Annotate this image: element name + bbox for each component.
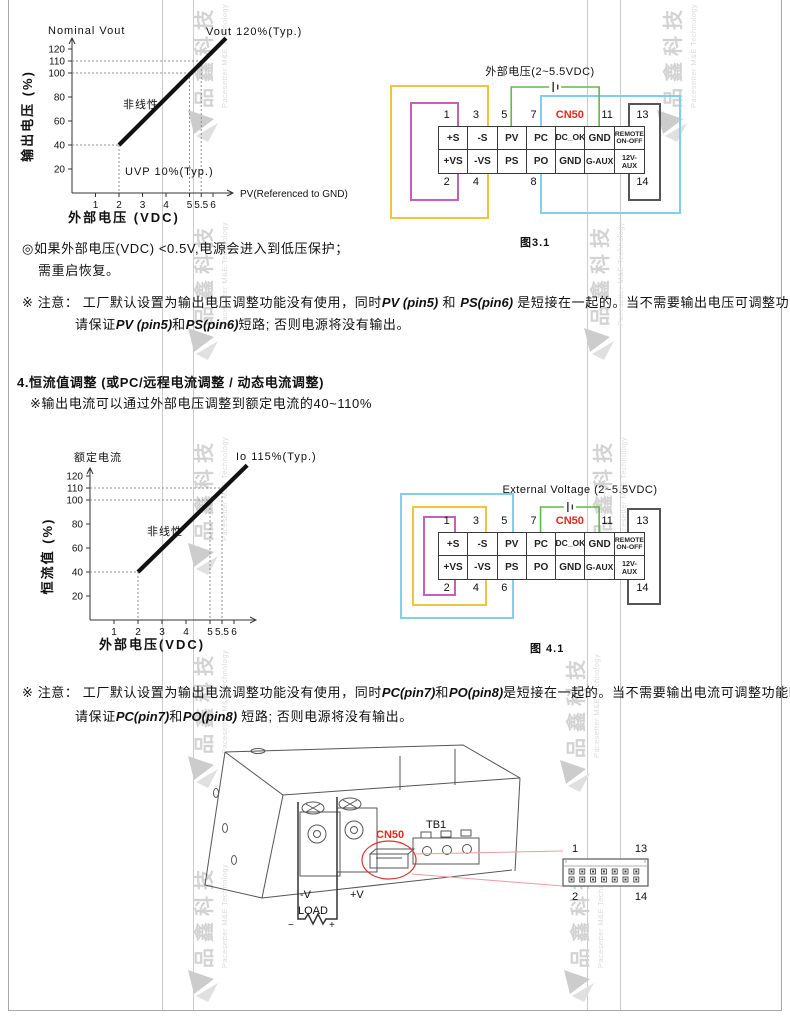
pin-cell: PC bbox=[527, 127, 556, 150]
pin-cell: PS bbox=[498, 556, 527, 579]
pin-cell: GND bbox=[556, 150, 585, 173]
pin-cell: REMOTE ON-OFF bbox=[615, 127, 644, 150]
svg-text:5: 5 bbox=[207, 627, 213, 638]
svg-text:Nominal Vout: Nominal Vout bbox=[48, 25, 125, 37]
chassis-inner-left-edge bbox=[262, 795, 283, 898]
connector-figure-4-1: +S-SPVPCDC_OKGNDREMOTE ON-OFF+VS-VSPSPOG… bbox=[390, 460, 700, 665]
plus-label: + bbox=[329, 920, 335, 931]
pin-cell: PO bbox=[527, 556, 556, 579]
pin-row: +VS-VSPSPOGNDG-AUX12V-AUX bbox=[439, 150, 644, 173]
page-border-right bbox=[781, 0, 782, 1010]
tb1-tab bbox=[441, 831, 451, 837]
pin-cell: PV bbox=[498, 533, 527, 556]
tb1-label: TB1 bbox=[426, 819, 446, 831]
tb1-screw bbox=[463, 845, 472, 854]
tb1-tab bbox=[421, 832, 431, 838]
page-border-left bbox=[8, 0, 9, 1010]
svg-text:5.5: 5.5 bbox=[215, 627, 229, 638]
page-border-bottom bbox=[8, 1010, 782, 1011]
leader-line bbox=[416, 851, 563, 854]
uvp-protection-note: ◎如果外部电压(VDC) <0.5V,电源会进入到低压保护； 需重启恢复。 bbox=[22, 238, 349, 282]
note-line: 请保证PC(pin7)和PO(pin8) 短路; 否则电源将没有输出。 bbox=[75, 706, 790, 730]
psu-connection-drawing: CN50 TB1 -V +V LOAD − + 1 13 2 14 bbox=[180, 738, 670, 950]
current-adjust-note: ※ 注意： 工厂默认设置为输出电流调整功能没有使用，同时PC(pin7)和PO(… bbox=[22, 682, 790, 730]
svg-text:20: 20 bbox=[54, 165, 66, 176]
terminal-hole bbox=[345, 821, 363, 839]
figure-caption: 图3.1 bbox=[520, 234, 550, 250]
pin-cell: PV bbox=[498, 127, 527, 150]
terminal-hole bbox=[314, 831, 321, 838]
pin-cell: GND bbox=[556, 556, 585, 579]
pin-number: 6 bbox=[492, 582, 516, 594]
chart2-svg: 20406080100110120123455.56额定电流外部电压(VDC)恒… bbox=[40, 436, 370, 666]
chassis-bottom-edge bbox=[205, 752, 512, 898]
svg-text:80: 80 bbox=[54, 93, 66, 104]
svg-text:外部电压 (VDC): 外部电压 (VDC) bbox=[67, 210, 180, 225]
pin-cell: +VS bbox=[439, 150, 468, 173]
pin-number: 7 bbox=[522, 109, 546, 121]
current-adjust-chart: 20406080100110120123455.56额定电流外部电压(VDC)恒… bbox=[40, 436, 370, 671]
terminal-hole bbox=[308, 825, 326, 843]
pin-row: +S-SPVPCDC_OKGNDREMOTE ON-OFF bbox=[439, 533, 644, 556]
header-pin2-label: 2 bbox=[572, 891, 578, 903]
screw-cross bbox=[343, 800, 357, 808]
note-line: ※ 注意： 工厂默认设置为输出电流调整功能没有使用，同时PC(pin7)和PO(… bbox=[22, 682, 790, 706]
pin-cell: -S bbox=[468, 533, 497, 556]
output-terminal-block bbox=[337, 808, 377, 872]
connector-figure-3-1: +S-SPVPCDC_OKGNDREMOTE ON-OFF+VS-VSPSPOG… bbox=[380, 60, 690, 260]
svg-text:20: 20 bbox=[72, 592, 84, 603]
output-terminal-block bbox=[300, 812, 340, 876]
svg-text:6: 6 bbox=[231, 627, 237, 638]
section4-subline: ※输出电流可以通过外部电压调整到额定电流的40~110% bbox=[30, 393, 372, 412]
voltage-adjust-note: ※ 注意： 工厂默认设置为输出电压调整功能没有使用，同时PV (pin5) 和 … bbox=[22, 292, 790, 336]
pin-number: 13 bbox=[630, 109, 654, 121]
pin-cell: REMOTE ON-OFF bbox=[615, 533, 644, 556]
svg-text:60: 60 bbox=[72, 544, 84, 555]
pin-number: 14 bbox=[630, 176, 654, 188]
svg-text:40: 40 bbox=[72, 568, 84, 579]
vent-hole bbox=[214, 789, 219, 798]
watermark-logo-icon bbox=[562, 970, 596, 1002]
vout-adjust-chart: 20406080100110120123455.56Nominal Vout外部… bbox=[20, 8, 350, 243]
vent-hole bbox=[232, 856, 237, 865]
svg-text:恒流值 (%): 恒流值 (%) bbox=[40, 518, 55, 595]
svg-text:非线性: 非线性 bbox=[123, 97, 159, 111]
cn50-label: CN50 bbox=[548, 109, 592, 121]
svg-text:额定电流: 额定电流 bbox=[74, 450, 122, 464]
cn50-pin-header bbox=[563, 859, 648, 886]
pin-cell: DC_OK bbox=[556, 533, 585, 556]
pin-number: 13 bbox=[630, 515, 654, 527]
pin-cell: 12V-AUX bbox=[615, 556, 644, 579]
datasheet-page: 20406080100110120123455.56Nominal Vout外部… bbox=[0, 0, 790, 1018]
svg-text:非线性: 非线性 bbox=[147, 524, 183, 538]
section4-heading: 4.恒流值调整 (或PC/远程电流调整 / 动态电流调整) bbox=[17, 372, 324, 391]
pin-cell: GND bbox=[585, 127, 614, 150]
svg-text:5.5: 5.5 bbox=[194, 200, 208, 211]
pin-number: 4 bbox=[464, 176, 488, 188]
pin-cell: -VS bbox=[468, 150, 497, 173]
svg-text:Vout 120%(Typ.): Vout 120%(Typ.) bbox=[206, 26, 302, 38]
svg-text:120: 120 bbox=[66, 472, 83, 483]
pin-cell: PS bbox=[498, 150, 527, 173]
chart1-svg: 20406080100110120123455.56Nominal Vout外部… bbox=[20, 8, 350, 238]
pin-number: 2 bbox=[435, 176, 459, 188]
pin-number: 11 bbox=[595, 515, 619, 527]
svg-text:110: 110 bbox=[49, 57, 65, 68]
external-voltage-label: External Voltage (2~5.5VDC) bbox=[475, 484, 685, 496]
pin-cell: PC bbox=[527, 533, 556, 556]
svg-text:PV(Referenced to GND): PV(Referenced to GND) bbox=[240, 189, 348, 200]
svg-text:UVP 10%(Typ.): UVP 10%(Typ.) bbox=[125, 166, 214, 178]
svg-text:6: 6 bbox=[210, 200, 216, 211]
tb1-tab bbox=[461, 830, 471, 836]
pin-row: +VS-VSPSPOGNDG-AUX12V-AUX bbox=[439, 556, 644, 579]
pos-v-label: +V bbox=[350, 889, 364, 901]
chassis-back-edge bbox=[225, 745, 520, 778]
cn50-label: CN50 bbox=[548, 515, 592, 527]
svg-text:120: 120 bbox=[48, 45, 65, 56]
header-pin1-label: 1 bbox=[572, 843, 578, 855]
pin-row: +S-SPVPCDC_OKGNDREMOTE ON-OFF bbox=[439, 127, 644, 150]
header-pin13-label: 13 bbox=[635, 843, 647, 855]
pin-cell: PO bbox=[527, 150, 556, 173]
pin-cell: GND bbox=[585, 533, 614, 556]
pin-cell: -S bbox=[468, 127, 497, 150]
pin-number: 1 bbox=[435, 515, 459, 527]
pin-number: 4 bbox=[464, 582, 488, 594]
pin-cell: +S bbox=[439, 127, 468, 150]
svg-text:100: 100 bbox=[66, 496, 83, 507]
pin-cell: +S bbox=[439, 533, 468, 556]
svg-text:外部电压(VDC): 外部电压(VDC) bbox=[98, 637, 205, 652]
svg-text:Io 115%(Typ.): Io 115%(Typ.) bbox=[236, 451, 317, 463]
pin-number: 7 bbox=[522, 515, 546, 527]
pin-number: 8 bbox=[522, 176, 546, 188]
neg-v-label: -V bbox=[300, 889, 312, 901]
note-line: ※ 注意： 工厂默认设置为输出电压调整功能没有使用，同时PV (pin5) 和 … bbox=[22, 292, 790, 314]
pin-number: 5 bbox=[492, 109, 516, 121]
pin-number: 3 bbox=[464, 109, 488, 121]
svg-text:输出电压 (%): 输出电压 (%) bbox=[20, 70, 35, 162]
pin-number: 2 bbox=[435, 582, 459, 594]
pin-cell: -VS bbox=[468, 556, 497, 579]
chassis-right-edge bbox=[515, 778, 520, 871]
watermark-logo-icon bbox=[186, 970, 220, 1002]
pin-cell: DC_OK bbox=[556, 127, 585, 150]
svg-text:60: 60 bbox=[54, 117, 66, 128]
header-pin14-label: 14 bbox=[635, 891, 647, 903]
figure-caption: 图 4.1 bbox=[530, 640, 564, 656]
external-voltage-label: 外部电压(2~5.5VDC) bbox=[453, 63, 628, 79]
pin-number: 11 bbox=[595, 109, 619, 121]
pin-number: 3 bbox=[464, 515, 488, 527]
pin-number: 14 bbox=[630, 582, 654, 594]
pin-table: +S-SPVPCDC_OKGNDREMOTE ON-OFF+VS-VSPSPOG… bbox=[438, 532, 645, 580]
pin-table: +S-SPVPCDC_OKGNDREMOTE ON-OFF+VS-VSPSPOG… bbox=[438, 126, 645, 174]
minus-label: − bbox=[288, 920, 294, 931]
leader-line bbox=[412, 874, 563, 886]
cn50-label: CN50 bbox=[376, 829, 404, 841]
pin-cell: G-AUX bbox=[585, 150, 614, 173]
svg-text:110: 110 bbox=[67, 484, 83, 495]
svg-text:5: 5 bbox=[187, 200, 193, 211]
note-line: 需重启恢复。 bbox=[38, 260, 349, 282]
chassis-opening-edge bbox=[225, 752, 520, 795]
pin-cell: G-AUX bbox=[585, 556, 614, 579]
svg-text:100: 100 bbox=[48, 69, 65, 80]
svg-text:80: 80 bbox=[72, 520, 84, 531]
pin-number: 5 bbox=[492, 515, 516, 527]
pin-cell: 12V-AUX bbox=[615, 150, 644, 173]
note-line: 请保证PV (pin5)和PS(pin6)短路; 否则电源将没有输出。 bbox=[75, 314, 790, 336]
pin-number: 1 bbox=[435, 109, 459, 121]
note-line: ◎如果外部电压(VDC) <0.5V,电源会进入到低压保护； bbox=[22, 238, 349, 260]
terminal-hole bbox=[351, 827, 358, 834]
load-label: LOAD bbox=[298, 905, 328, 917]
screw-cross bbox=[306, 804, 320, 812]
vent-hole bbox=[223, 824, 228, 833]
svg-text:40: 40 bbox=[54, 141, 66, 152]
pin-cell: +VS bbox=[439, 556, 468, 579]
watermark-en-text: Pacesetter M&E Technology bbox=[689, 4, 698, 108]
